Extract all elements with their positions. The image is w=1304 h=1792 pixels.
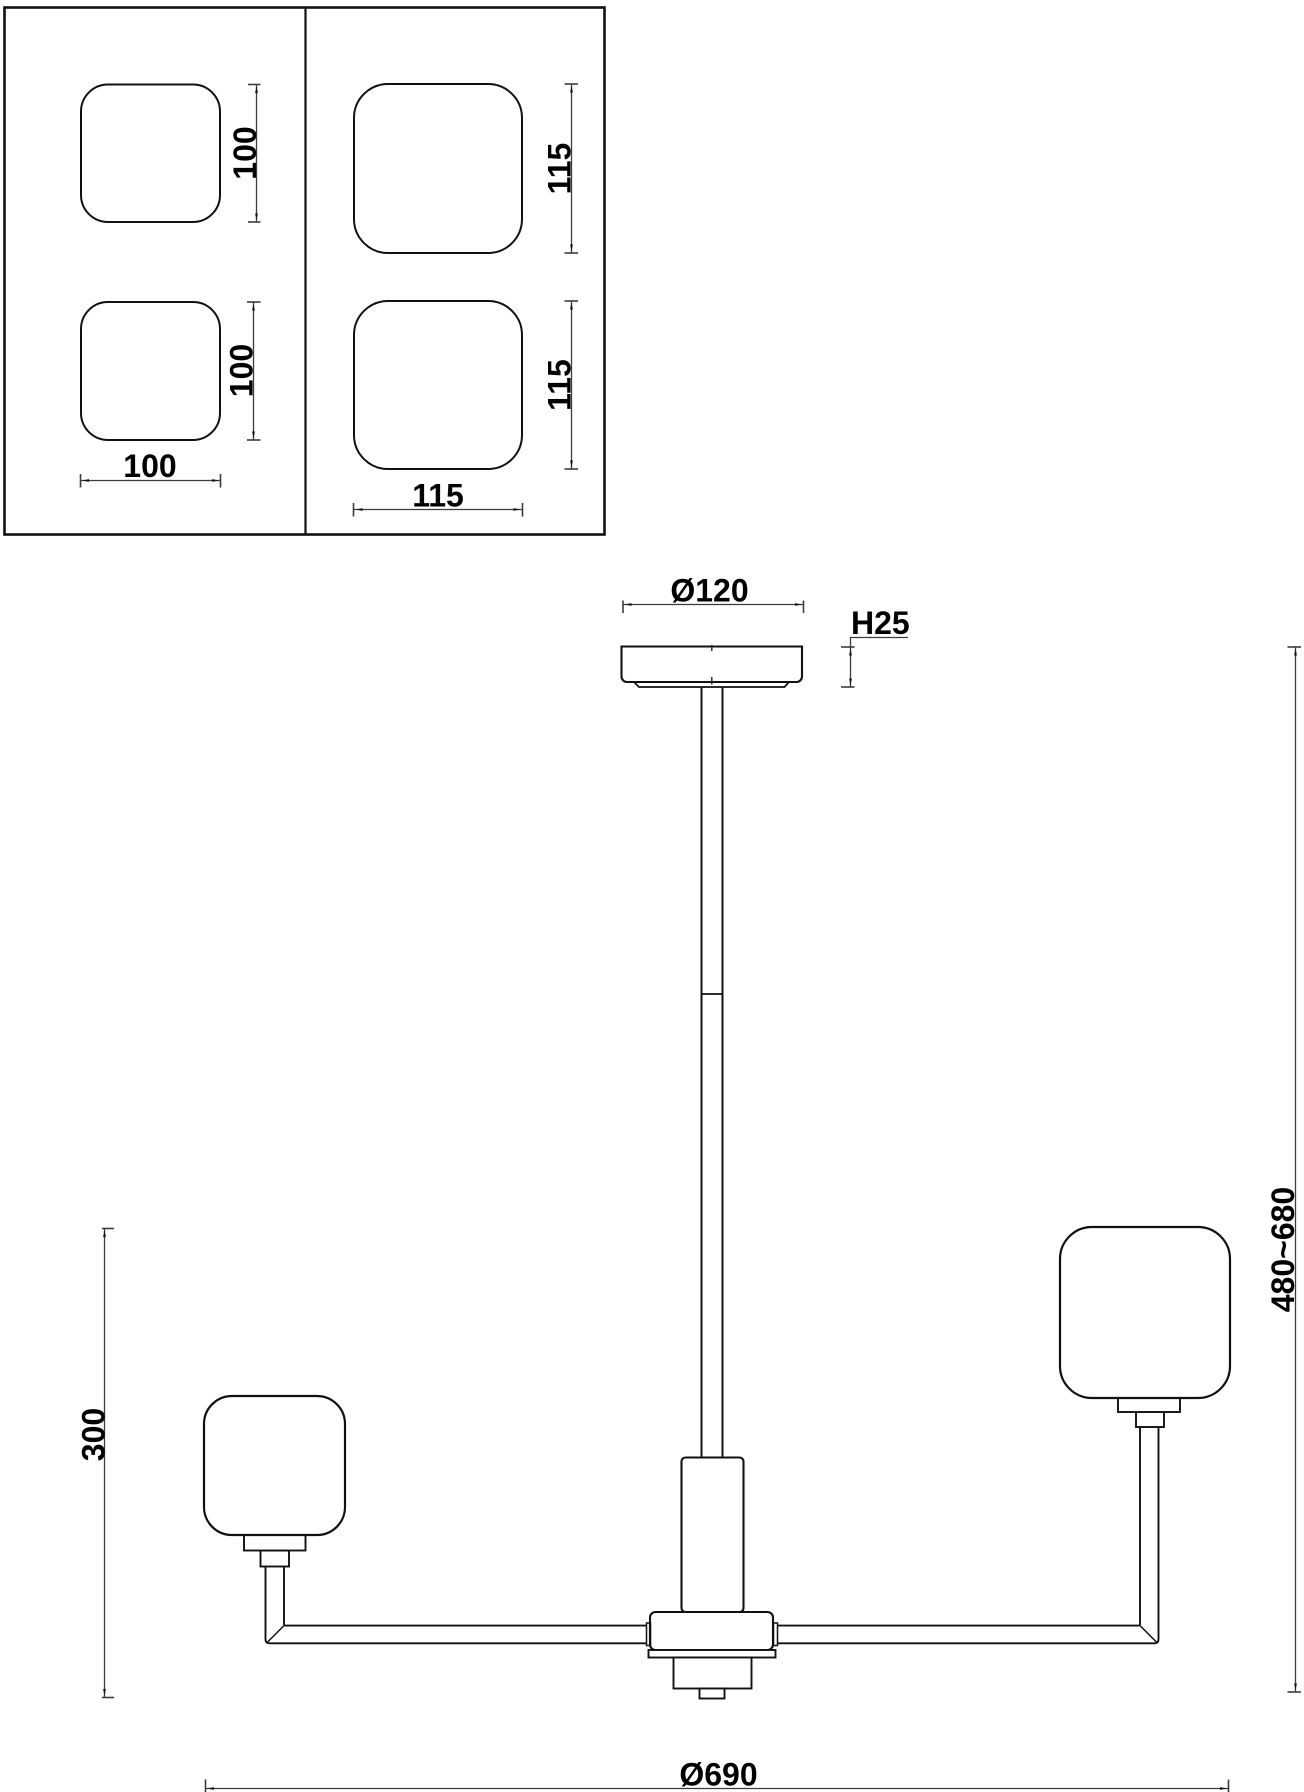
svg-text:115: 115 bbox=[542, 143, 578, 195]
svg-text:300: 300 bbox=[76, 1408, 112, 1461]
svg-text:100: 100 bbox=[123, 448, 176, 484]
svg-text:115: 115 bbox=[412, 478, 464, 514]
svg-text:100: 100 bbox=[227, 126, 263, 179]
svg-text:115: 115 bbox=[542, 359, 578, 411]
svg-text:100: 100 bbox=[224, 344, 260, 397]
svg-text:Ø690: Ø690 bbox=[679, 1757, 757, 1792]
svg-text:Ø120: Ø120 bbox=[670, 573, 748, 609]
svg-text:480~680: 480~680 bbox=[1265, 1187, 1301, 1312]
svg-text:H25: H25 bbox=[851, 605, 910, 641]
